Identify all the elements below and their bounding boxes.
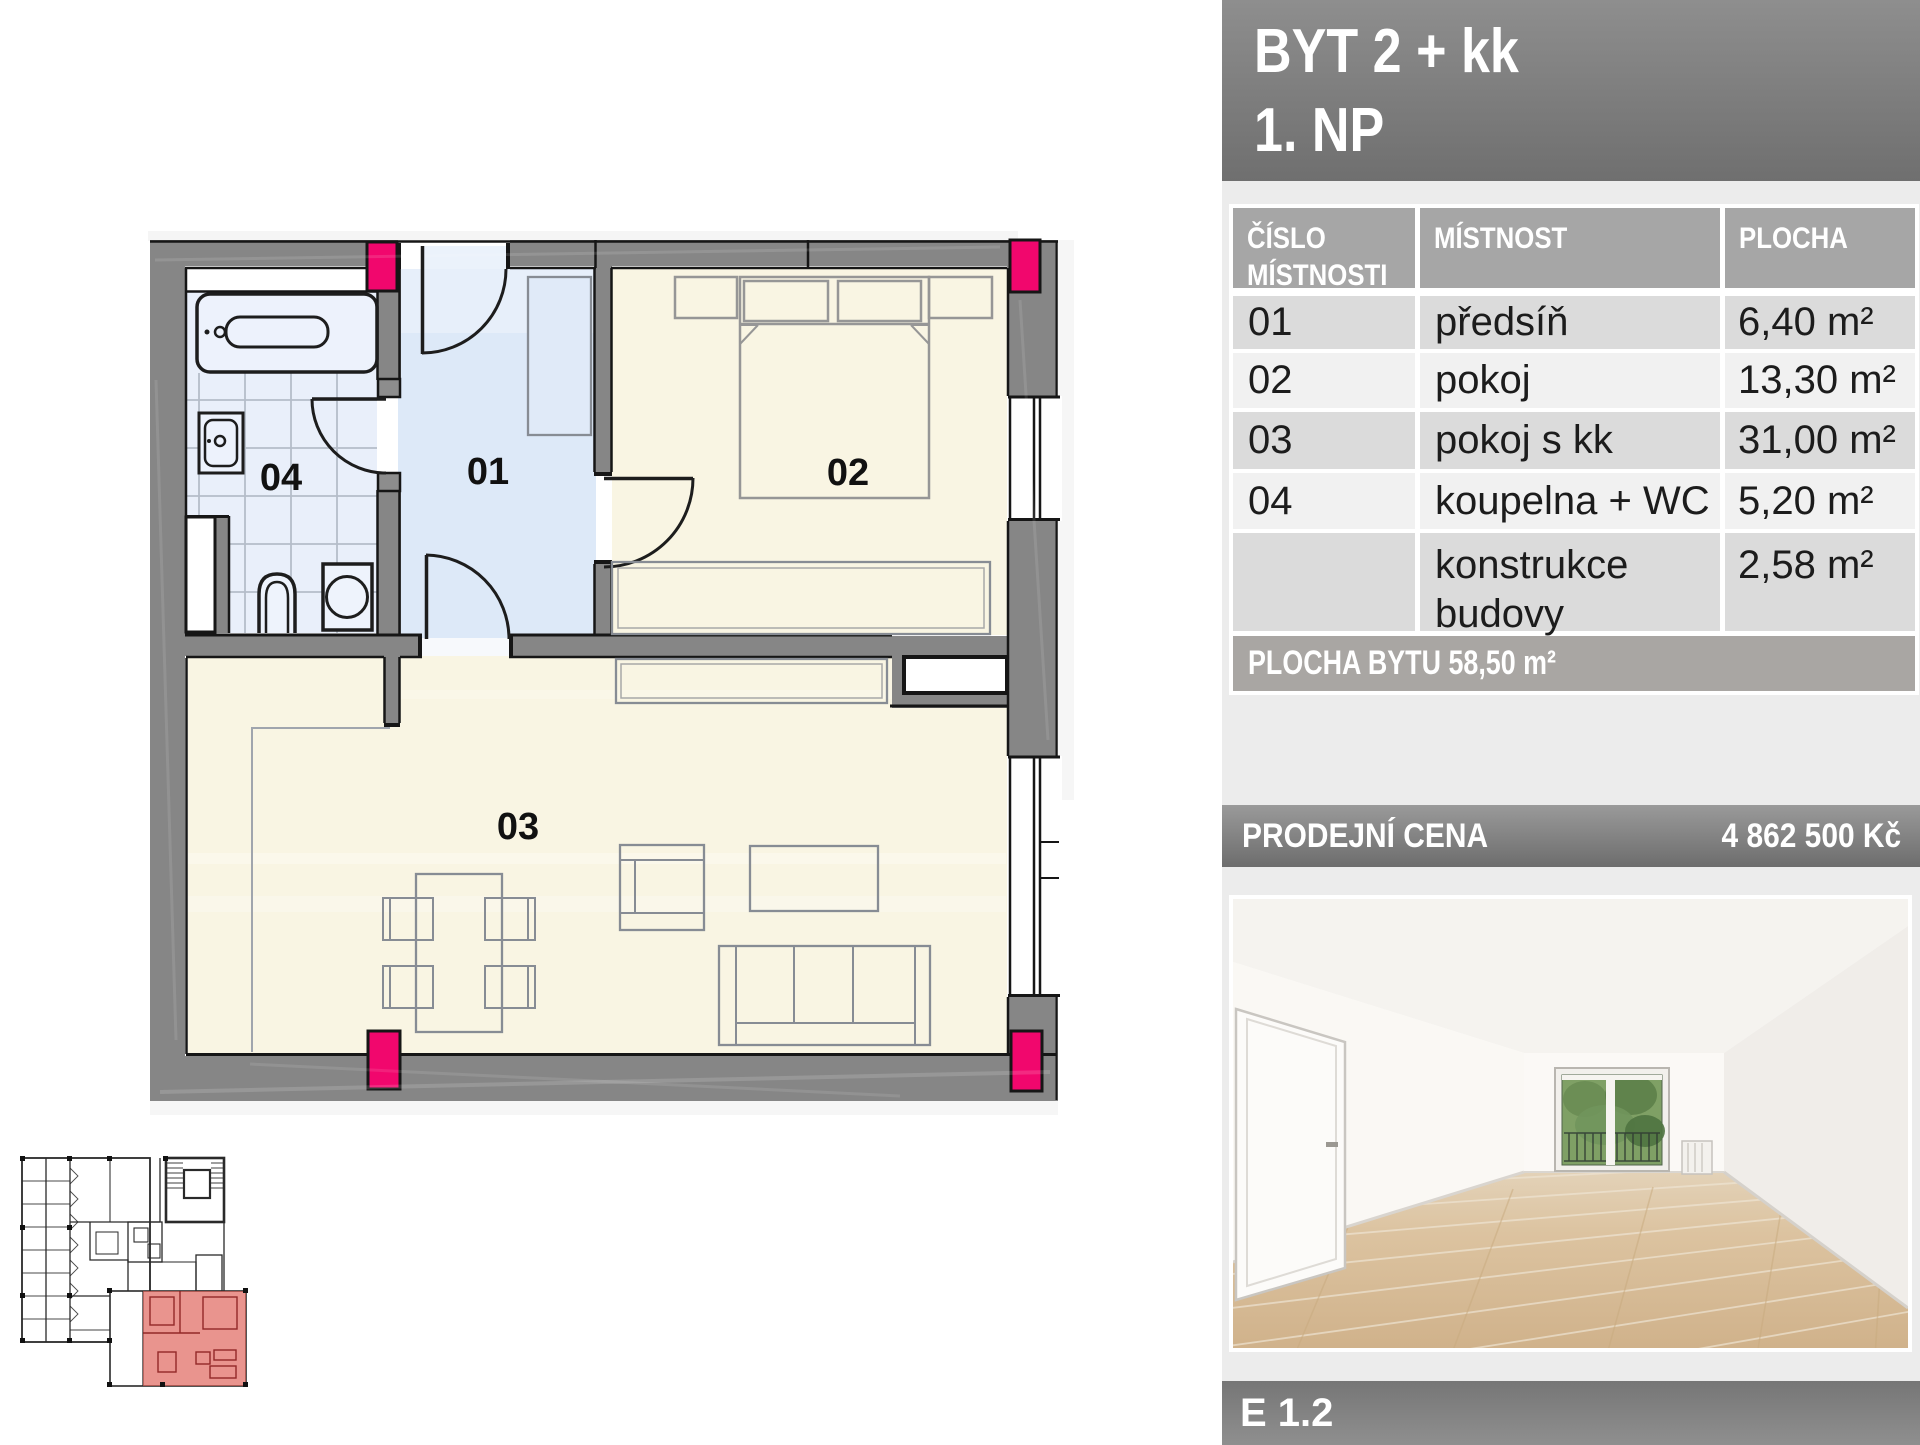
- svg-text:02: 02: [827, 452, 869, 494]
- svg-text:03: 03: [497, 806, 539, 848]
- svg-text:04: 04: [260, 457, 302, 499]
- svg-text:01: 01: [467, 451, 509, 493]
